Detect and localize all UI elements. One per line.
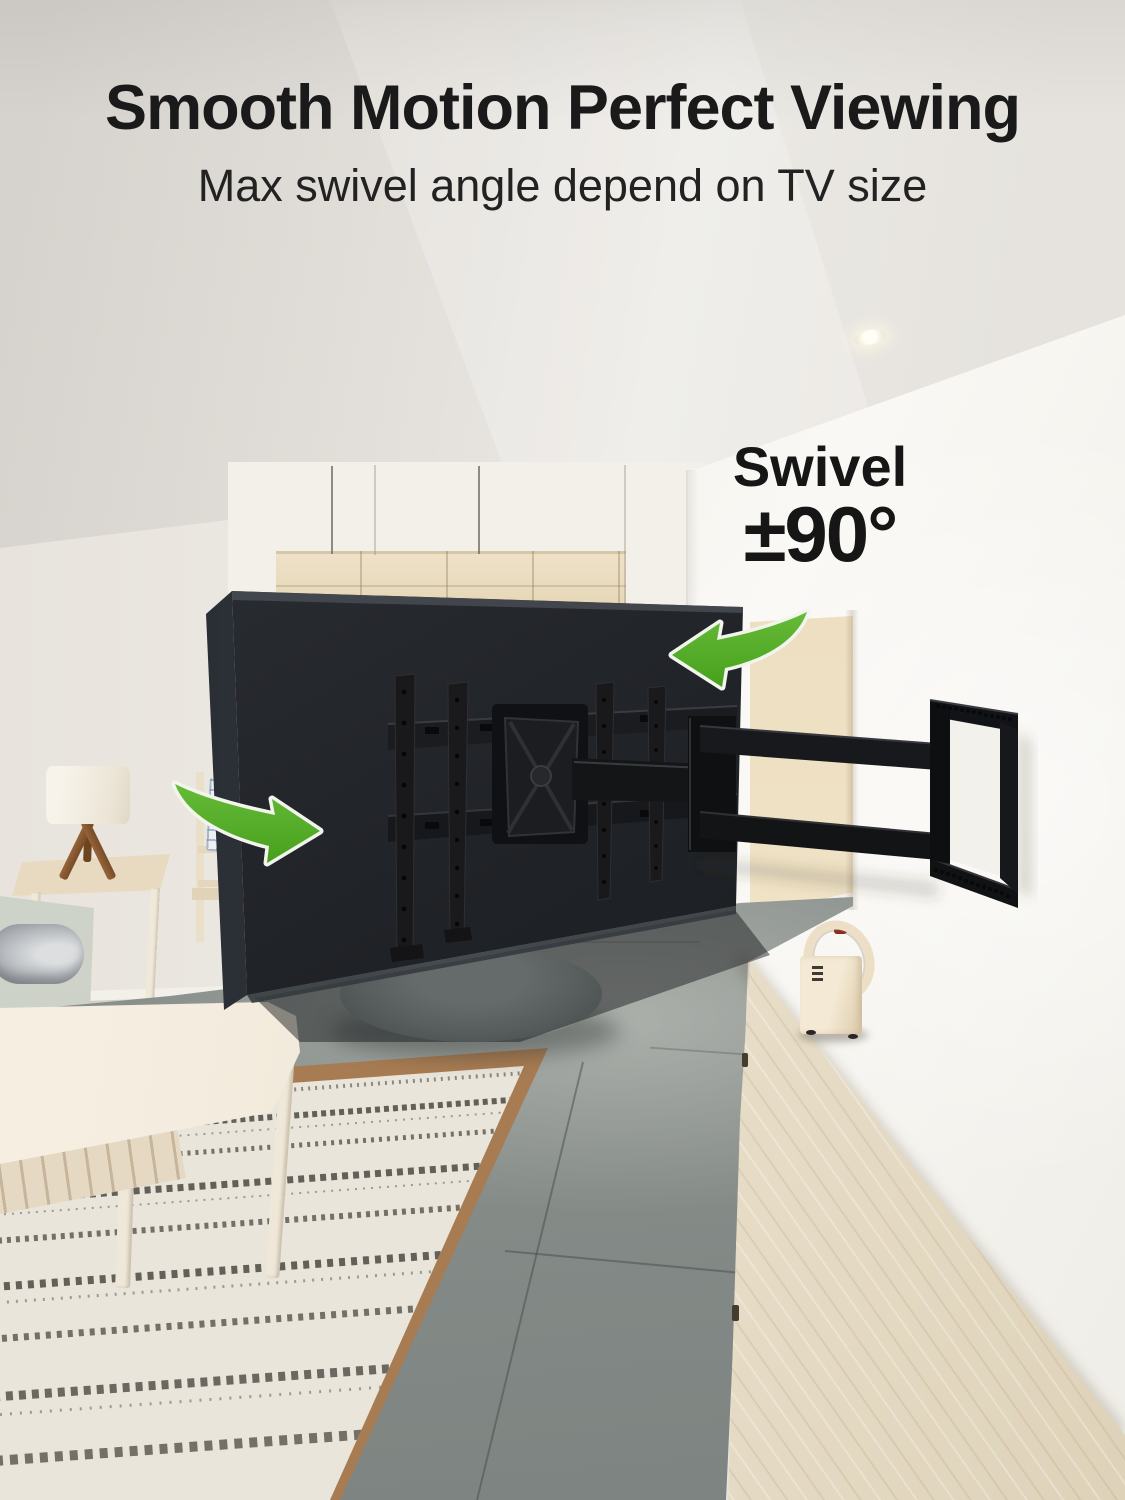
retro-radio bbox=[798, 920, 870, 1042]
sofa-bolster-pillow bbox=[0, 924, 84, 984]
hanging-wire bbox=[331, 466, 333, 554]
wall-seam bbox=[624, 465, 626, 625]
corner-shadow bbox=[845, 610, 859, 910]
swivel-value: ±90° bbox=[690, 495, 950, 573]
radio-body bbox=[800, 956, 862, 1034]
hanging-wire bbox=[478, 466, 480, 554]
swivel-annotation: Swivel ±90° bbox=[690, 438, 950, 573]
swivel-label: Swivel bbox=[690, 438, 950, 497]
table-lamp-shade bbox=[46, 766, 130, 824]
bench-seam bbox=[742, 1053, 748, 1067]
radio-foot bbox=[806, 1030, 816, 1035]
radio-knob bbox=[812, 966, 823, 969]
cabinet-seam bbox=[276, 585, 626, 587]
radio-knob bbox=[812, 972, 823, 975]
background-chair bbox=[196, 772, 204, 942]
tv-mount-product-scene: Smooth Motion Perfect Viewing Max swivel… bbox=[0, 0, 1125, 1500]
page-subtitle: Max swivel angle depend on TV size bbox=[0, 160, 1125, 212]
ceiling-top-shade bbox=[0, 0, 1125, 300]
page-title: Smooth Motion Perfect Viewing bbox=[0, 72, 1125, 144]
wall-seam bbox=[374, 465, 376, 555]
radio-foot bbox=[848, 1034, 858, 1039]
radio-knob bbox=[812, 978, 823, 981]
bench-seam bbox=[732, 1305, 739, 1321]
